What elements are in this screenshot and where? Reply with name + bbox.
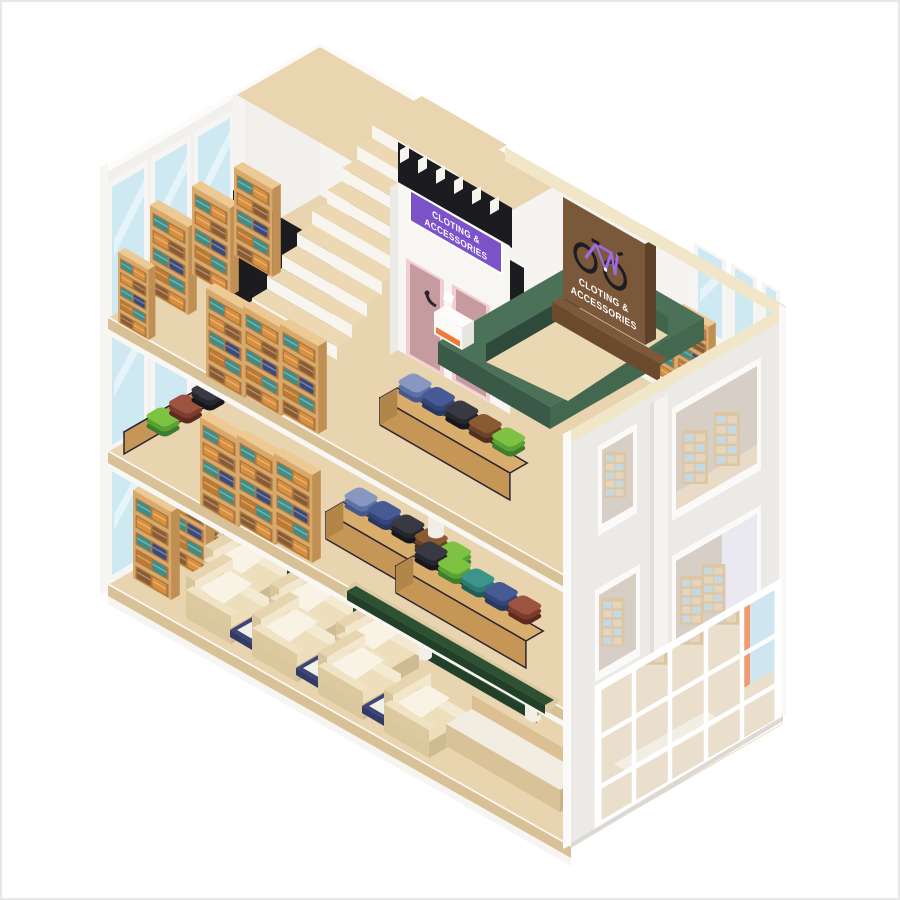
illustration-canvas: CLOTING & ACCESSORIES: [0, 0, 900, 900]
left-cut-edge: [100, 162, 108, 596]
store-isometric-illustration: CLOTING & ACCESSORIES: [0, 0, 900, 900]
facade-cut-edge: [563, 430, 571, 849]
